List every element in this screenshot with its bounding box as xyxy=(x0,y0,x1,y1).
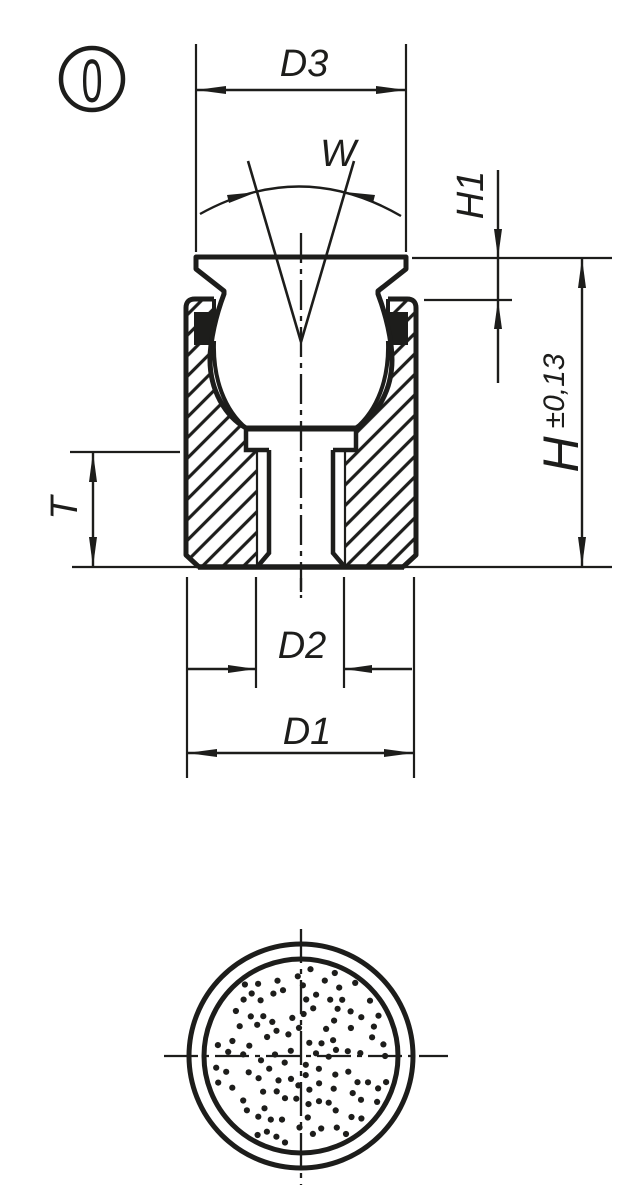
stipple-dot xyxy=(371,1024,377,1030)
stipple-dot xyxy=(279,1117,285,1123)
drawing-sheet: 0 xyxy=(0,0,618,1200)
d3-arrow-right xyxy=(376,86,406,94)
stipple-dot xyxy=(348,1008,354,1014)
dimension-d2: D2 xyxy=(188,577,412,688)
t-label: T xyxy=(44,494,86,520)
stipple-dot xyxy=(316,1098,322,1104)
stipple-dot xyxy=(327,997,333,1003)
dimension-t: T xyxy=(44,452,180,567)
stipple-dot xyxy=(318,1040,324,1046)
stipple-dot xyxy=(354,1079,360,1085)
stipple-dot xyxy=(223,1069,229,1075)
stipple-dot xyxy=(343,1131,349,1137)
stipple-dot xyxy=(307,966,313,972)
stipple-dot xyxy=(246,1043,252,1049)
stipple-dot xyxy=(352,980,358,986)
stipple-dot xyxy=(367,998,373,1004)
stipple-dot xyxy=(273,1028,279,1034)
stipple-dot xyxy=(380,1041,386,1047)
stipple-dot xyxy=(255,1132,261,1138)
stipple-dot xyxy=(318,1125,324,1131)
position-marker: 0 xyxy=(61,47,123,116)
t-arrow-top xyxy=(89,452,97,482)
h-arrow-bottom xyxy=(578,537,586,567)
d3-label: D3 xyxy=(280,43,329,85)
dimension-d1: D1 xyxy=(187,577,414,778)
stipple-dot xyxy=(330,1037,336,1043)
stipple-dot xyxy=(261,1105,267,1111)
w-arrow-right xyxy=(345,192,375,203)
stipple-dot xyxy=(339,997,345,1003)
stipple-dot xyxy=(274,978,280,984)
stipple-dot xyxy=(296,1025,302,1031)
stipple-dot xyxy=(268,1117,274,1123)
stipple-dot xyxy=(293,1096,299,1102)
stipple-dot xyxy=(260,1089,266,1095)
stipple-dot xyxy=(242,981,248,987)
position-marker-label: 0 xyxy=(81,47,102,116)
stipple-dot xyxy=(248,1013,254,1019)
stipple-dot xyxy=(306,1040,312,1046)
stipple-dot xyxy=(303,1072,309,1078)
stipple-dot xyxy=(306,1087,312,1093)
stipple-dot xyxy=(334,1125,340,1131)
stipple-dot xyxy=(365,1079,371,1085)
stipple-dot xyxy=(229,1085,235,1091)
stipple-dot xyxy=(305,1114,311,1120)
dimension-h: H±0,13 xyxy=(533,258,589,567)
stipple-dot xyxy=(313,992,319,998)
stipple-dot xyxy=(254,1022,260,1028)
h1-label: H1 xyxy=(450,171,492,220)
stipple-dot xyxy=(310,1131,316,1137)
stipple-dot xyxy=(305,1101,311,1107)
stipple-dot xyxy=(331,1018,337,1024)
w-arrow-left xyxy=(227,192,257,203)
stipple-dot xyxy=(375,1085,381,1091)
counterbore-right xyxy=(333,429,356,450)
stipple-dot xyxy=(333,1047,339,1053)
stipple-dot xyxy=(225,1049,231,1055)
stipple-dot xyxy=(282,1139,288,1145)
stipple-dot xyxy=(358,1115,364,1121)
stipple-dot xyxy=(241,997,247,1003)
stipple-dot xyxy=(233,1008,239,1014)
stipple-dot xyxy=(288,1076,294,1082)
dimension-d3: D3 xyxy=(196,43,406,252)
stipple-dot xyxy=(332,1072,338,1078)
stipple-dot xyxy=(258,997,264,1003)
stipple-dot xyxy=(345,1048,351,1054)
d2-arrow-left xyxy=(228,665,256,673)
bottom-view xyxy=(164,929,448,1185)
stipple-dot xyxy=(258,1057,264,1063)
stipple-dot xyxy=(295,973,301,979)
stipple-dot xyxy=(285,1031,291,1037)
stipple-dot xyxy=(237,1023,243,1029)
stipple-dot xyxy=(255,981,261,987)
stipple-dot xyxy=(260,1013,266,1019)
stipple-dot xyxy=(336,985,342,991)
stipple-dot xyxy=(348,1114,354,1120)
stipple-dot xyxy=(335,1006,341,1012)
stipple-dot xyxy=(282,1060,288,1066)
stipple-dot xyxy=(249,990,255,996)
stipple-dot xyxy=(289,1015,295,1021)
stipple-dot xyxy=(266,1066,272,1072)
stipple-dot xyxy=(269,1019,275,1025)
stipple-dot xyxy=(331,1086,337,1092)
stipple-dot xyxy=(332,970,338,976)
stipple-dot xyxy=(358,1097,364,1103)
stipple-dot xyxy=(215,1080,221,1086)
stipple-dot xyxy=(303,1062,309,1068)
technical-drawing: 0 xyxy=(0,0,618,1200)
stipple-dot xyxy=(316,1080,322,1086)
stipple-dot xyxy=(333,1107,339,1113)
stipple-dot xyxy=(316,1066,322,1072)
stipple-dot xyxy=(322,978,328,984)
h-label: H±0,13 xyxy=(533,353,589,472)
section-view xyxy=(186,233,416,597)
d1-arrow-right xyxy=(384,749,414,757)
h1-arrow-bottom xyxy=(494,300,502,329)
stipple-dot xyxy=(310,1005,316,1011)
d1-label: D1 xyxy=(283,711,332,753)
stipple-dot xyxy=(288,1048,294,1054)
stipple-dot xyxy=(303,996,309,1002)
stipple-dot xyxy=(229,1038,235,1044)
h-arrow-top xyxy=(578,258,586,288)
stipple-dot xyxy=(264,1129,270,1135)
d1-arrow-left xyxy=(187,749,217,757)
w-label: W xyxy=(320,133,359,175)
stipple-dot xyxy=(375,1013,381,1019)
stipple-dot xyxy=(270,991,276,997)
stipple-dot xyxy=(383,1079,389,1085)
d2-label: D2 xyxy=(278,625,327,667)
stipple-dot xyxy=(350,1090,356,1096)
stipple-dot xyxy=(273,1134,279,1140)
d2-arrow-right xyxy=(344,665,372,673)
stipple-dot xyxy=(246,1069,252,1075)
stipple-dot xyxy=(358,1014,364,1020)
thread-hole-left xyxy=(258,450,269,566)
stipple-dot xyxy=(215,1042,221,1048)
stipple-dot xyxy=(264,1034,270,1040)
stipple-dot xyxy=(282,1095,288,1101)
stipple-dot xyxy=(280,987,286,993)
stipple-dot xyxy=(244,1107,250,1113)
d3-arrow-left xyxy=(196,86,226,94)
stipple-dot xyxy=(274,1088,280,1094)
thread-hole-right xyxy=(333,450,344,566)
t-arrow-bottom xyxy=(89,537,97,567)
stipple-dot xyxy=(213,1065,219,1071)
stipple-dot xyxy=(256,1075,262,1081)
stipple-dot xyxy=(369,1034,375,1040)
stipple-dot xyxy=(323,1026,329,1032)
stipple-dot xyxy=(374,1099,380,1105)
stipple-dot xyxy=(240,1097,246,1103)
h1-arrow-top xyxy=(494,229,502,258)
counterbore-left xyxy=(246,429,269,450)
stipple-dot xyxy=(326,1100,332,1106)
stipple-dot xyxy=(275,1077,281,1083)
stipple-dot xyxy=(255,1114,261,1120)
stipple-dot xyxy=(348,1025,354,1031)
stipple-dot xyxy=(345,1069,351,1075)
